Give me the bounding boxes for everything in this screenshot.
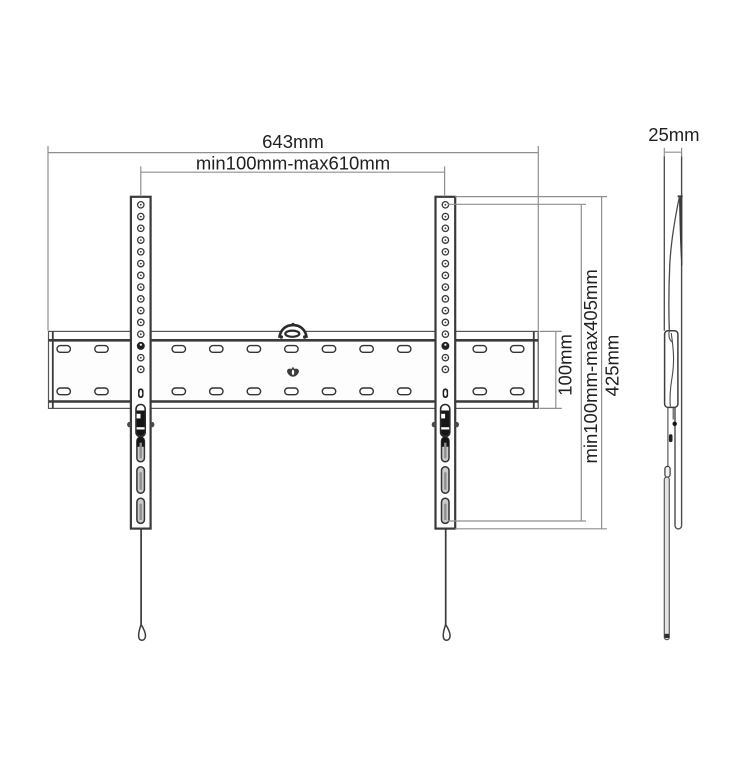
svg-text:425mm: 425mm [601, 335, 622, 397]
svg-text:min100mm-max405mm: min100mm-max405mm [580, 269, 601, 463]
svg-text:643mm: 643mm [262, 131, 324, 152]
svg-text:100mm: 100mm [554, 334, 575, 396]
svg-text:min100mm-max610mm: min100mm-max610mm [196, 152, 390, 173]
svg-text:25mm: 25mm [648, 124, 699, 145]
